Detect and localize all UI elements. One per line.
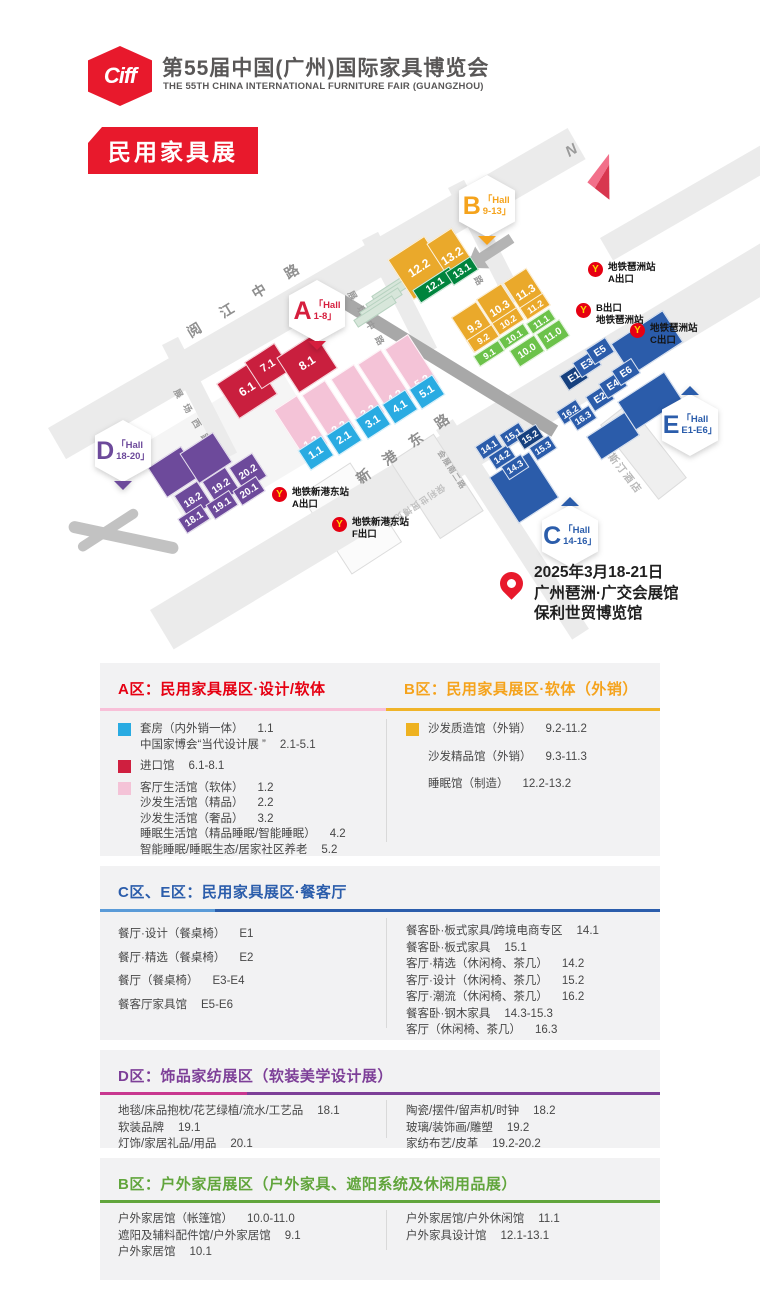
legend-a-column: A区：民用家具展区·设计/软体 套房（内外销一体）1.1 中国家博会“当代设计展… — [100, 663, 386, 858]
badge-c-wedge — [561, 497, 579, 506]
legend-card-ce: C区、E区：民用家具展区·餐客厅 餐厅·设计（餐桌椅）E1 餐厅·精选（餐桌椅）… — [100, 866, 660, 1040]
legend-item: 灯饰/家居礼品/用品20.1 — [118, 1136, 370, 1153]
legend-item: 客厅·潮流（休闲椅、茶几）16.2 — [406, 989, 644, 1006]
venue-line2: 广州琶洲·广交会展馆 — [534, 584, 679, 605]
legend-item: 进口馆6.1-8.1 — [118, 759, 370, 775]
legend-item: 户外家具设计馆12.1-13.1 — [406, 1228, 644, 1245]
badge-e-letter: E — [663, 413, 680, 438]
ciff-logo: Ciff — [88, 46, 152, 106]
legend-ce-left: 餐厅·设计（餐桌椅）E1 餐厅·精选（餐桌椅）E2 餐厅（餐桌椅）E3-E4 餐… — [100, 912, 386, 1039]
badge-hall-b-hex: B 「Hall9-13」 — [459, 175, 515, 237]
card-divider — [386, 719, 387, 842]
badge-b-letter: B — [463, 194, 481, 219]
legend-item: 沙发生活馆（奢品）3.2 — [118, 812, 370, 828]
metro-xingangdong-exit-a: Y 地铁新港东站A出口 — [272, 487, 349, 512]
metro-icon: Y — [588, 262, 603, 277]
legend-item: 户外家居馆（帐篷馆）10.0-11.0 — [118, 1211, 370, 1228]
metro-label: 地铁琶洲站C出口 — [650, 323, 698, 348]
legend-b2-left: 户外家居馆（帐篷馆）10.0-11.0 遮阳及辅料配件馆/户外家居馆9.1 户外… — [100, 1203, 386, 1261]
badge-e-wedge — [681, 386, 699, 395]
card-divider — [386, 1100, 387, 1138]
road-top-right — [600, 143, 760, 261]
legend-a-rule — [100, 708, 386, 711]
legend-ce-title: C区、E区：民用家具展区·餐客厅 — [100, 866, 660, 909]
swatch-pink — [118, 782, 131, 795]
legend-item: 家纺布艺/皮革19.2-20.2 — [406, 1136, 644, 1153]
section-banner: 民用家具展 — [88, 127, 258, 174]
legend-item: 户外家居馆/户外休闲馆11.1 — [406, 1211, 644, 1228]
legend-item: 沙发质造馆（外销）9.2-11.2 — [406, 722, 644, 738]
legend-item: 餐厅（餐桌椅）E3-E4 — [118, 970, 370, 994]
metro-label: 地铁琶洲站A出口 — [608, 262, 656, 287]
north-arrow-icon — [584, 150, 621, 199]
swatch-yellow — [406, 723, 419, 736]
badge-hall-d: D 「Hall18-20」 — [95, 420, 151, 482]
swatch-red — [118, 760, 131, 773]
legend-item: 餐厅·精选（餐桌椅）E2 — [118, 947, 370, 971]
badge-b-text: 「Hall9-13」 — [483, 195, 512, 218]
badge-c-letter: C — [543, 524, 561, 549]
venue-date: 2025年3月18-21日 — [534, 563, 679, 584]
legend-item: 玻璃/装饰画/雕塑19.2 — [406, 1120, 644, 1137]
legend-a-title: A区：民用家具展区·设计/软体 — [100, 663, 386, 708]
badge-hall-d-hex: D 「Hall18-20」 — [95, 420, 151, 482]
legend-b-column: B区：民用家具展区·软体（外销） 沙发质造馆（外销）9.2-11.2 沙发精品馆… — [386, 663, 660, 858]
venue-line3: 保利世贸博览馆 — [534, 604, 679, 625]
legend-d-title: D区：饰品家纺展区（软装美学设计展） — [100, 1050, 660, 1092]
legend-b2-title: B区：户外家居展区（户外家具、遮阳系统及休闲用品展） — [100, 1158, 660, 1200]
legend-item: 餐厅·设计（餐桌椅）E1 — [118, 923, 370, 947]
legend-card-d: D区：饰品家纺展区（软装美学设计展） 地毯/床品抱枕/花艺绿植/流水/工艺品18… — [100, 1050, 660, 1148]
card-divider — [386, 1210, 387, 1250]
legend-item: 沙发生活馆（精品）2.2 — [118, 796, 370, 812]
badge-hall-b: B 「Hall9-13」 — [459, 175, 515, 237]
legend-d-left: 地毯/床品抱枕/花艺绿植/流水/工艺品18.1 软装品牌19.1 灯饰/家居礼品… — [100, 1095, 386, 1153]
metro-xingangdong-exit-f: Y 地铁新港东站F出口 — [332, 517, 409, 542]
badge-hall-a-hex: A 「Hall1-8」 — [289, 280, 345, 342]
badge-hall-c: C 「Hall14-16」 — [542, 505, 598, 567]
legend-item: 遮阳及辅料配件馆/户外家居馆9.1 — [118, 1228, 370, 1245]
badge-d-wedge — [114, 481, 132, 490]
legend-ce-right: 餐客卧·板式家具/跨境电商专区14.1 餐客卧·板式家具15.1 客厅·精选（休… — [386, 912, 660, 1039]
metro-pazhou-exit-a: Y 地铁琶洲站A出口 — [588, 262, 656, 287]
metro-pazhou-exit-c: Y 地铁琶洲站C出口 — [630, 323, 698, 348]
metro-icon: Y — [576, 303, 591, 318]
badge-a-letter: A — [294, 299, 312, 324]
legend-item: 客厅（休闲椅、茶几）16.3 — [406, 1022, 644, 1039]
legend-b-rule — [386, 708, 660, 711]
location-pin-icon — [495, 567, 528, 600]
legend-item: 户外家居馆10.1 — [118, 1244, 370, 1261]
legend-item: 餐客卧·板式家具15.1 — [406, 940, 644, 957]
card-divider — [386, 918, 387, 1028]
badge-hall-a: A 「Hall1-8」 — [289, 280, 345, 342]
badge-e-text: 「HallE1-E6」 — [681, 414, 717, 437]
venue-info: 2025年3月18-21日 广州琶洲·广交会展馆 保利世贸博览馆 — [534, 563, 679, 625]
badge-hall-e: E 「HallE1-E6」 — [662, 394, 718, 456]
legend-b-title: B区：民用家具展区·软体（外销） — [386, 663, 660, 708]
legend-item: 智能睡眠/睡眠生态/居家社区养老5.2 — [118, 843, 370, 859]
legend-item: 餐客厅家具馆E5-E6 — [118, 994, 370, 1018]
legend-item: 餐客卧·板式家具/跨境电商专区14.1 — [406, 923, 644, 940]
badge-d-text: 「Hall18-20」 — [116, 440, 150, 463]
legend-d-right: 陶瓷/摆件/留声机/时钟18.2 玻璃/装饰画/雕塑19.2 家纺布艺/皮革19… — [386, 1095, 660, 1153]
legend-item: 软装品牌19.1 — [118, 1120, 370, 1137]
metro-icon: Y — [272, 487, 287, 502]
legend-card-b2: B区：户外家居展区（户外家具、遮阳系统及休闲用品展） 户外家居馆（帐篷馆）10.… — [100, 1158, 660, 1280]
legend-card-a-b: A区：民用家具展区·设计/软体 套房（内外销一体）1.1 中国家博会“当代设计展… — [100, 663, 660, 856]
badge-d-letter: D — [96, 439, 114, 464]
metro-icon: Y — [630, 323, 645, 338]
legend-item: 睡眠馆（制造）12.2-13.2 — [406, 777, 644, 793]
legend-item: 餐客卧·钢木家具14.3-15.3 — [406, 1006, 644, 1023]
ciff-logo-text: Ciff — [104, 63, 136, 89]
swatch-blue — [118, 723, 131, 736]
badge-hall-e-hex: E 「HallE1-E6」 — [662, 394, 718, 456]
metro-label: 地铁新港东站A出口 — [292, 487, 349, 512]
page-subtitle: THE 55TH CHINA INTERNATIONAL FURNITURE F… — [163, 81, 484, 92]
metro-icon: Y — [332, 517, 347, 532]
legend-item: 地毯/床品抱枕/花艺绿植/流水/工艺品18.1 — [118, 1103, 370, 1120]
ciff-fair-map-poster: Ciff 第55届中国(广州)国际家具博览会 THE 55TH CHINA IN… — [0, 0, 760, 1291]
page-title: 第55届中国(广州)国际家具博览会 — [162, 52, 489, 82]
legend-item: 陶瓷/摆件/留声机/时钟18.2 — [406, 1103, 644, 1120]
badge-c-text: 「Hall14-16」 — [563, 525, 597, 548]
legend-item: 套房（内外销一体）1.1 — [118, 722, 370, 738]
legend-b2-right: 户外家居馆/户外休闲馆11.1 户外家具设计馆12.1-13.1 — [386, 1203, 660, 1261]
legend-item: 客厅生活馆（软体）1.2 — [118, 781, 370, 797]
badge-a-text: 「Hall1-8」 — [314, 300, 341, 323]
legend-item: 沙发精品馆（外销）9.3-11.3 — [406, 750, 644, 766]
legend-item: 客厅·精选（休闲椅、茶几）14.2 — [406, 956, 644, 973]
badge-hall-c-hex: C 「Hall14-16」 — [542, 505, 598, 567]
legend-item: 客厅·设计（休闲椅、茶几）15.2 — [406, 973, 644, 990]
legend-item: 睡眠生活馆（精品睡眠/智能睡眠）4.2 — [118, 827, 370, 843]
metro-label: 地铁新港东站F出口 — [352, 517, 409, 542]
legend-item: 中国家博会“当代设计展 ”2.1-5.1 — [118, 738, 370, 754]
